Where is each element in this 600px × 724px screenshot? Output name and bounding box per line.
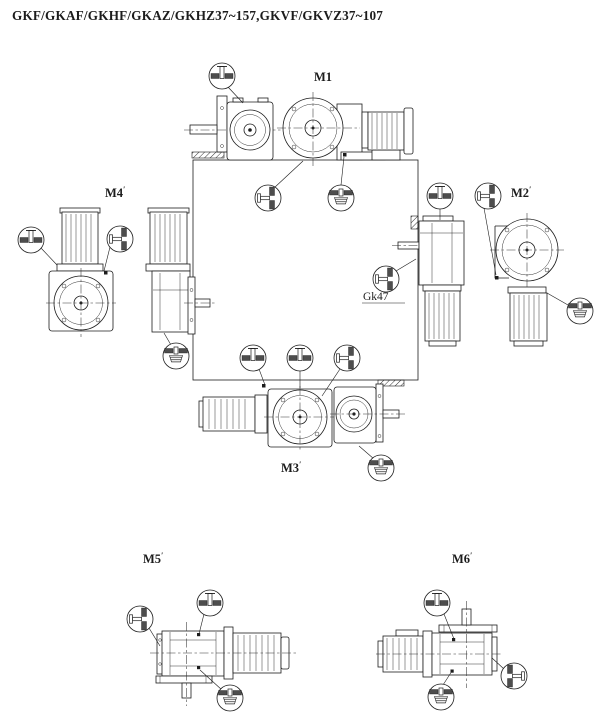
m3-label: M3′ xyxy=(281,460,301,475)
m5-drawing: M5′ xyxy=(127,551,296,711)
m2-label: M2′ xyxy=(511,185,531,200)
m2-breather-vent-icon xyxy=(427,183,453,209)
m6-oil-level-icon xyxy=(501,663,527,689)
m1-label: M1 xyxy=(314,70,332,84)
m3-breather-vent-icon-a xyxy=(240,345,266,371)
m4-oil-drain-icon xyxy=(163,343,189,369)
m5-oil-drain-icon xyxy=(217,685,243,711)
m1-oil-drain-icon xyxy=(328,185,354,211)
m3-drawing: M3′ xyxy=(199,345,406,481)
m2-gearmotor-side-view xyxy=(392,216,464,346)
m3-breather-vent-icon-b xyxy=(287,345,313,371)
m1-gearmotor-front-view xyxy=(277,92,413,166)
m2-gearmotor-front-view xyxy=(490,213,564,346)
m5-oil-level-icon xyxy=(127,606,153,632)
m4-drawing: M4′ xyxy=(18,185,216,369)
m1-oil-level-icon xyxy=(255,185,281,211)
m1-drawing: M1 xyxy=(184,63,413,211)
m6-label: M6′ xyxy=(452,551,472,566)
m2-oil-drain-icon xyxy=(567,298,593,324)
m5-label: M5′ xyxy=(143,551,163,566)
m4-gearmotor-front-view xyxy=(46,208,116,337)
m4-gearmotor-side-view xyxy=(146,208,216,334)
gk47-callout: Gk47 xyxy=(362,259,416,303)
m1-gearbox-side-view xyxy=(184,96,284,160)
m6-drawing: M6′ xyxy=(376,551,527,710)
m4-label: M4′ xyxy=(105,185,125,200)
page-title: GKF/GKAF/GKHF/GKAZ/GKHZ37~157,GKVF/GKVZ3… xyxy=(12,8,383,23)
m6-breather-vent-icon xyxy=(424,590,450,616)
m2-drawing: M2′ xyxy=(392,183,593,346)
gk47-label: Gk47 xyxy=(363,291,389,303)
m2-oil-level-icon xyxy=(475,183,501,209)
m3-gearmotor-front-view xyxy=(199,384,336,450)
m6-oil-drain-icon xyxy=(428,684,454,710)
mounting-positions-figure: GKF/GKAF/GKHF/GKAZ/GKHZ37~157,GKVF/GKVZ3… xyxy=(0,0,600,724)
gk47-oil-level-icon xyxy=(373,266,399,292)
m5-breather-vent-icon xyxy=(197,590,223,616)
m4-oil-level-icon xyxy=(107,226,133,252)
catalog-page: GKF/GKAF/GKHF/GKAZ/GKHZ37~157,GKVF/GKVZ3… xyxy=(0,0,600,724)
m3-gearbox-side-view xyxy=(330,380,406,443)
m3-oil-level-icon xyxy=(334,345,360,371)
m1-breather-vent-icon xyxy=(209,63,235,89)
m4-breather-vent-icon xyxy=(18,227,44,253)
m3-oil-drain-icon xyxy=(368,455,394,481)
